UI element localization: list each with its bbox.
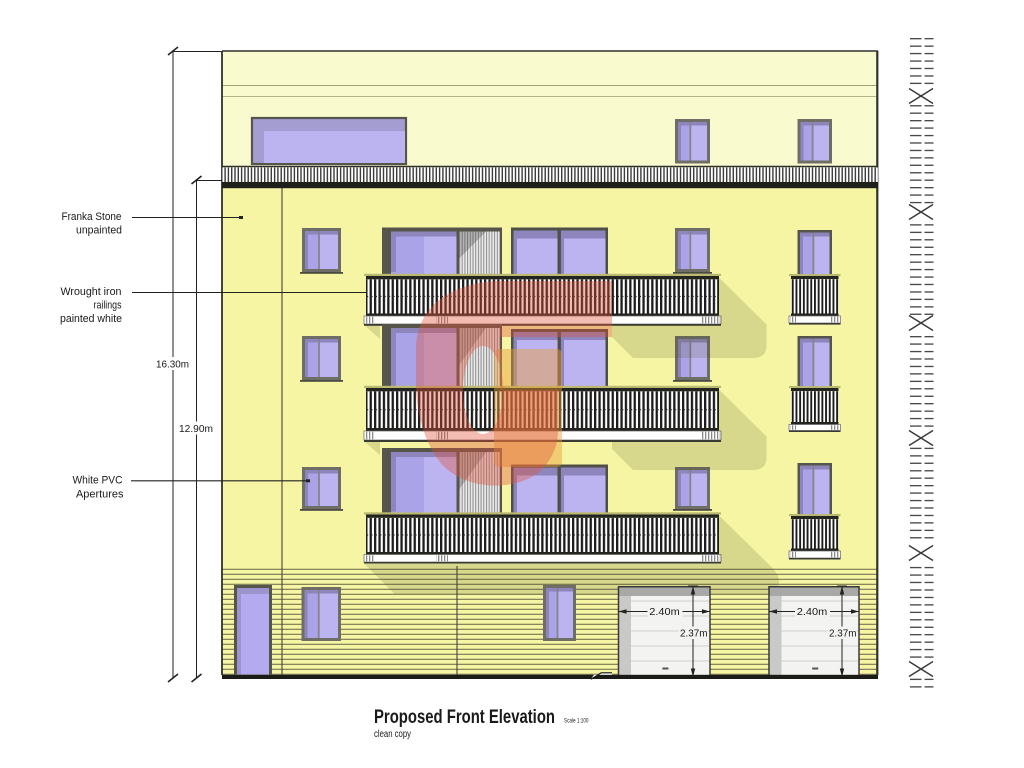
svg-text:12.90m: 12.90m: [179, 423, 213, 435]
svg-text:Scale 1:100: Scale 1:100: [564, 718, 589, 724]
svg-text:2.37m: 2.37m: [829, 628, 857, 639]
svg-text:Wrought iron: Wrought iron: [61, 286, 122, 298]
svg-text:2.40m: 2.40m: [649, 607, 680, 618]
svg-text:2.40m: 2.40m: [797, 607, 828, 618]
svg-text:2.37m: 2.37m: [680, 628, 708, 639]
svg-text:railings: railings: [94, 300, 122, 312]
svg-text:16.30m: 16.30m: [156, 359, 189, 371]
svg-text:Apertures: Apertures: [76, 488, 124, 500]
svg-text:painted white: painted white: [60, 313, 122, 325]
svg-text:clean copy: clean copy: [374, 729, 411, 740]
svg-text:White PVC: White PVC: [73, 475, 123, 487]
svg-text:Franka Stone: Franka Stone: [62, 211, 122, 223]
svg-text:unpainted: unpainted: [76, 225, 122, 237]
svg-text:Proposed Front Elevation: Proposed Front Elevation: [374, 707, 555, 728]
